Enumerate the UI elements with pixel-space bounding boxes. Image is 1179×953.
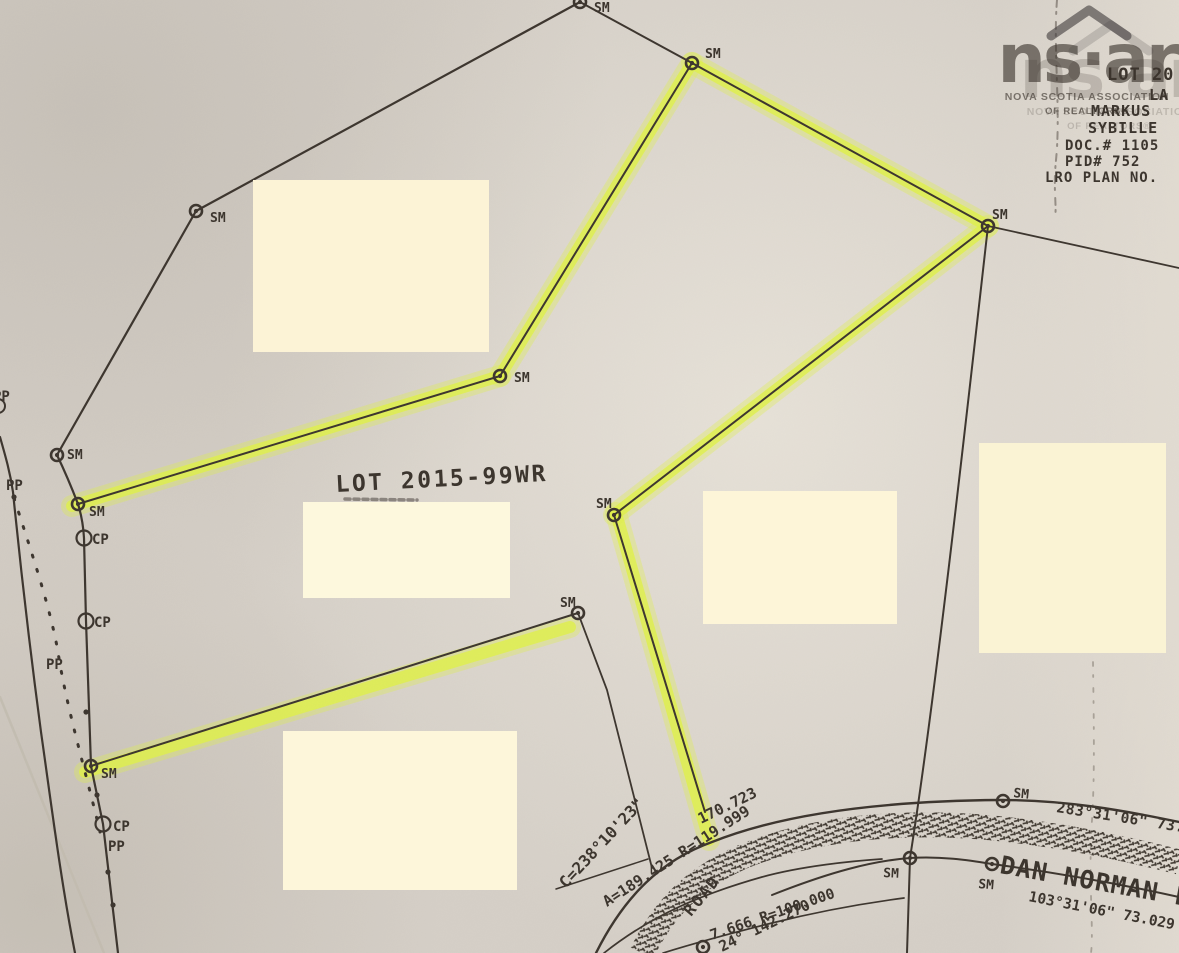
scanned-survey-plan: SMSMSMSMSMSMSMSMSMSMSMSMSMPPPPPPPPCPCPCP…	[0, 0, 1179, 953]
survey-plan-svg: SMSMSMSMSMSMSMSMSMSMSMSMSMPPPPPPPPCPCPCP…	[0, 0, 1179, 953]
redaction-overlay	[283, 731, 517, 890]
redaction-overlay	[303, 502, 510, 598]
redaction-overlay	[253, 180, 489, 352]
watermark-ghost	[1019, 25, 1179, 132]
nsar-watermark: ns·ar NOVA SCOTIA ASSOCIATION OF REALTOR…	[997, 10, 1179, 132]
redaction-overlay	[979, 443, 1166, 653]
redaction-overlay	[703, 491, 897, 624]
